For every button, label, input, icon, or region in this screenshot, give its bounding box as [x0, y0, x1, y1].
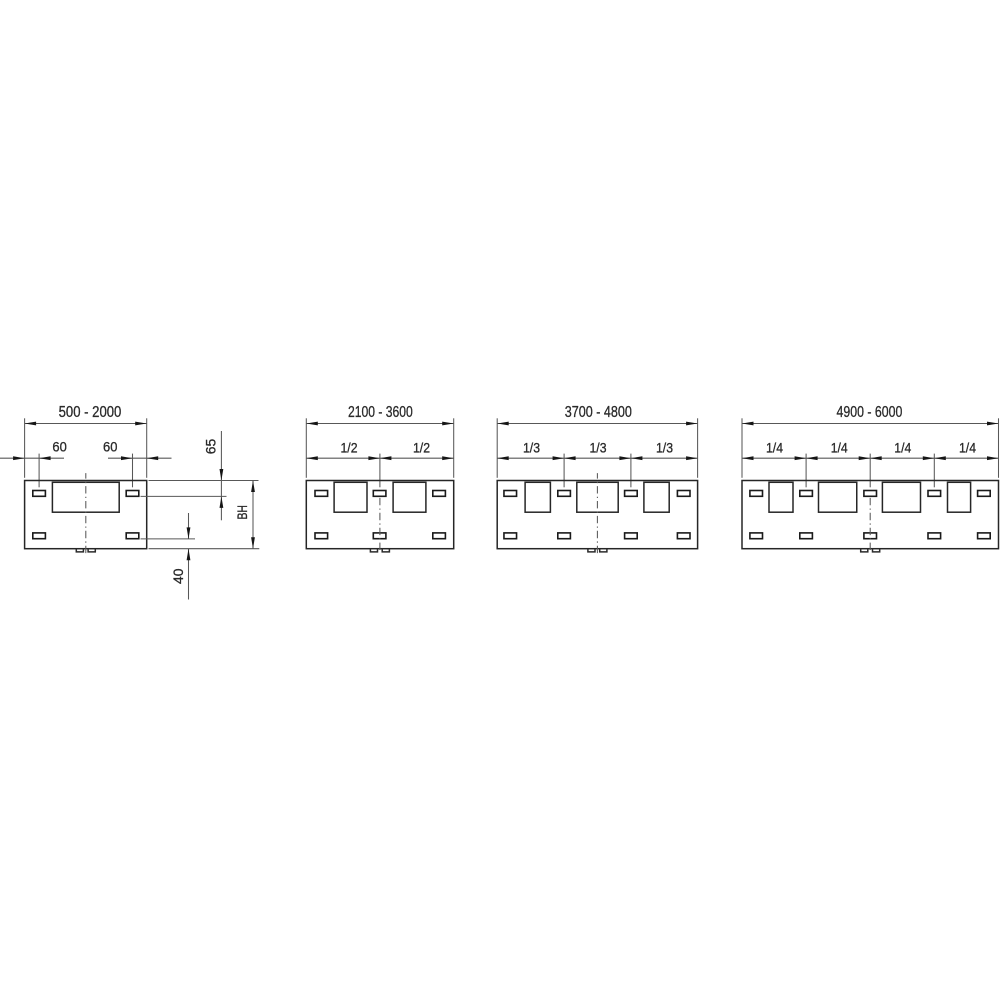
svg-text:2100 - 3600: 2100 - 3600: [348, 404, 413, 421]
svg-text:1/4: 1/4: [894, 440, 911, 455]
svg-text:4900 - 6000: 4900 - 6000: [837, 404, 903, 421]
svg-text:40: 40: [171, 568, 186, 584]
svg-text:1/4: 1/4: [766, 440, 783, 455]
svg-text:1/3: 1/3: [590, 440, 607, 455]
svg-text:500 - 2000: 500 - 2000: [59, 404, 122, 421]
svg-text:BH: BH: [235, 505, 250, 520]
svg-text:65: 65: [204, 438, 219, 454]
svg-text:1/4: 1/4: [831, 440, 848, 455]
svg-text:1/3: 1/3: [656, 440, 673, 455]
svg-text:60: 60: [103, 439, 118, 454]
svg-text:1/4: 1/4: [959, 440, 976, 455]
svg-text:60: 60: [52, 439, 67, 454]
svg-text:3700 - 4800: 3700 - 4800: [565, 404, 632, 421]
svg-text:1/3: 1/3: [523, 440, 540, 455]
svg-text:1/2: 1/2: [413, 440, 430, 455]
svg-text:1/2: 1/2: [341, 440, 358, 455]
